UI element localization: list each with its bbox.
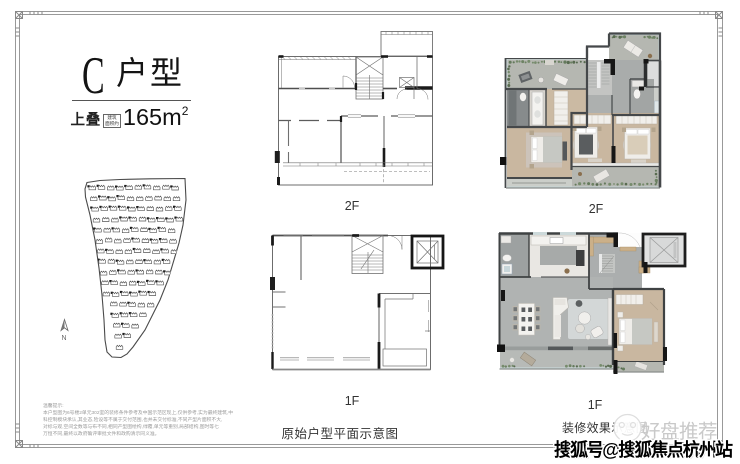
svg-text:N: N: [62, 335, 67, 342]
svg-text:站: 站: [715, 439, 733, 460]
svg-text:@: @: [602, 440, 620, 460]
